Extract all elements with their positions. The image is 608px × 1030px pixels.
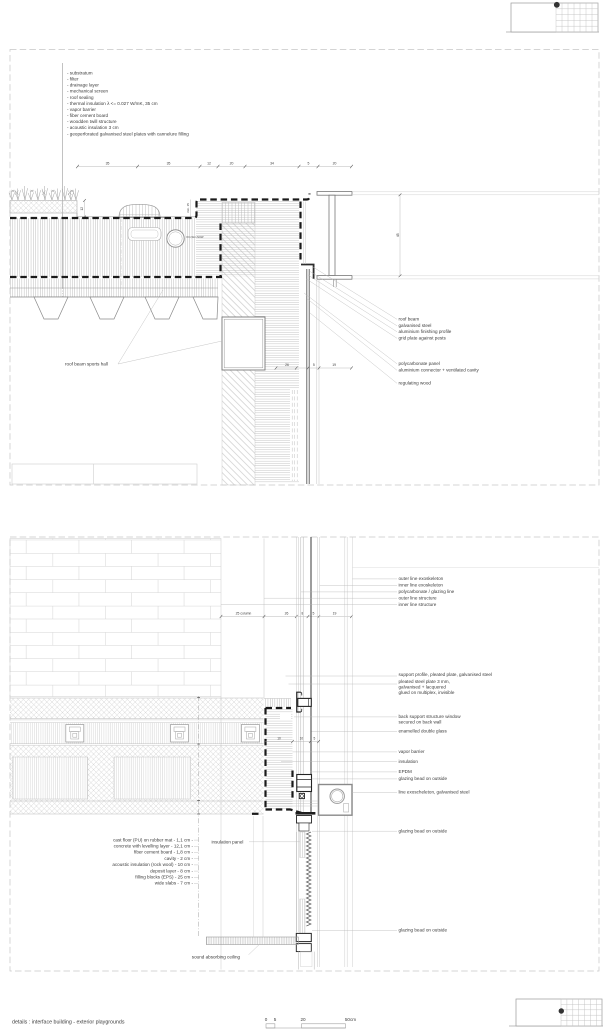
svg-text:insulation panel: insulation panel bbox=[212, 839, 244, 844]
svg-text:34: 34 bbox=[270, 162, 274, 166]
svg-text:line exoscheleton, galvanised: line exoscheleton, galvanised steel bbox=[399, 790, 470, 795]
svg-text:outer line structure: outer line structure bbox=[399, 595, 437, 600]
svg-text:- substratum- filter- drainage: - substratum- filter- drainage layer- me… bbox=[67, 71, 189, 137]
svg-text:35: 35 bbox=[106, 162, 110, 166]
svg-text:50cm: 50cm bbox=[345, 1017, 356, 1022]
svg-text:glazing bead on outside: glazing bead on outside bbox=[399, 776, 448, 781]
svg-text:25 column: 25 column bbox=[236, 612, 252, 616]
svg-text:galvanised + lacquered: galvanised + lacquered bbox=[399, 685, 447, 690]
svg-text:aluminium finishing profile: aluminium finishing profile bbox=[399, 329, 452, 334]
svg-text:back support structure window: back support structure window bbox=[399, 714, 462, 719]
svg-text:0: 0 bbox=[265, 1017, 268, 1022]
svg-text:inner line exoskeleton: inner line exoskeleton bbox=[399, 583, 444, 588]
svg-text:outer line exoskeleton: outer line exoskeleton bbox=[399, 576, 444, 581]
svg-text:galvanised steel: galvanised steel bbox=[399, 323, 432, 328]
svg-text:aluminium connector + ventilat: aluminium connector + ventilated cavity bbox=[399, 368, 480, 373]
svg-text:35: 35 bbox=[167, 162, 171, 166]
svg-text:roof beam: roof beam bbox=[399, 317, 420, 322]
svg-text:19: 19 bbox=[332, 363, 336, 367]
svg-text:5: 5 bbox=[308, 162, 310, 166]
svg-text:5: 5 bbox=[274, 1017, 277, 1022]
svg-text:20: 20 bbox=[230, 162, 234, 166]
svg-text:polycarbonate panel: polycarbonate panel bbox=[399, 361, 440, 366]
svg-text:secured on back wall: secured on back wall bbox=[399, 720, 442, 725]
svg-text:5: 5 bbox=[314, 737, 316, 741]
svg-text:5: 5 bbox=[313, 612, 315, 616]
svg-text:sound absorbing ceiling: sound absorbing ceiling bbox=[192, 954, 241, 959]
svg-text:details : interface building -: details : interface building - exterior … bbox=[12, 1020, 125, 1026]
svg-text:19: 19 bbox=[333, 612, 337, 616]
svg-text:12: 12 bbox=[80, 207, 84, 211]
svg-text:glazing bead on outside: glazing bead on outside bbox=[399, 828, 448, 833]
svg-text:10: 10 bbox=[277, 737, 281, 741]
svg-text:26: 26 bbox=[285, 363, 289, 367]
svg-text:min. 15: min. 15 bbox=[186, 203, 190, 213]
svg-text:regulating wood: regulating wood bbox=[399, 381, 432, 386]
svg-text:20: 20 bbox=[300, 1017, 306, 1022]
svg-text:26: 26 bbox=[285, 612, 289, 616]
svg-text:glued on multiplex, invisible: glued on multiplex, invisible bbox=[399, 690, 455, 695]
svg-text:12: 12 bbox=[207, 162, 211, 166]
svg-text:pleated steel plate 3 mm,: pleated steel plate 3 mm, bbox=[399, 679, 450, 684]
svg-text:support profile, pleated plate: support profile, pleated plate, galvanis… bbox=[399, 672, 492, 677]
svg-text:EPDM: EPDM bbox=[399, 769, 412, 774]
svg-text:5: 5 bbox=[313, 363, 315, 367]
svg-text:45: 45 bbox=[396, 233, 400, 237]
svg-text:inner line structure: inner line structure bbox=[399, 602, 437, 607]
svg-text:polycarbonate / glazing line: polycarbonate / glazing line bbox=[399, 589, 455, 594]
svg-text:20: 20 bbox=[333, 162, 337, 166]
svg-text:fi=1,5cm NOW: fi=1,5cm NOW bbox=[187, 235, 204, 239]
svg-text:glazing bead on outside: glazing bead on outside bbox=[399, 928, 448, 933]
svg-text:grid plate against pests: grid plate against pests bbox=[399, 336, 447, 341]
svg-text:cast floor (PU) on rubber mat: cast floor (PU) on rubber mat - 1,1 cm -… bbox=[112, 837, 193, 885]
svg-text:enamelled double glass: enamelled double glass bbox=[399, 729, 448, 734]
svg-text:insulation: insulation bbox=[399, 759, 419, 764]
svg-text:vapor barrier: vapor barrier bbox=[399, 749, 426, 754]
svg-text:10: 10 bbox=[300, 737, 304, 741]
svg-text:roof beam sports hall: roof beam sports hall bbox=[65, 362, 108, 367]
